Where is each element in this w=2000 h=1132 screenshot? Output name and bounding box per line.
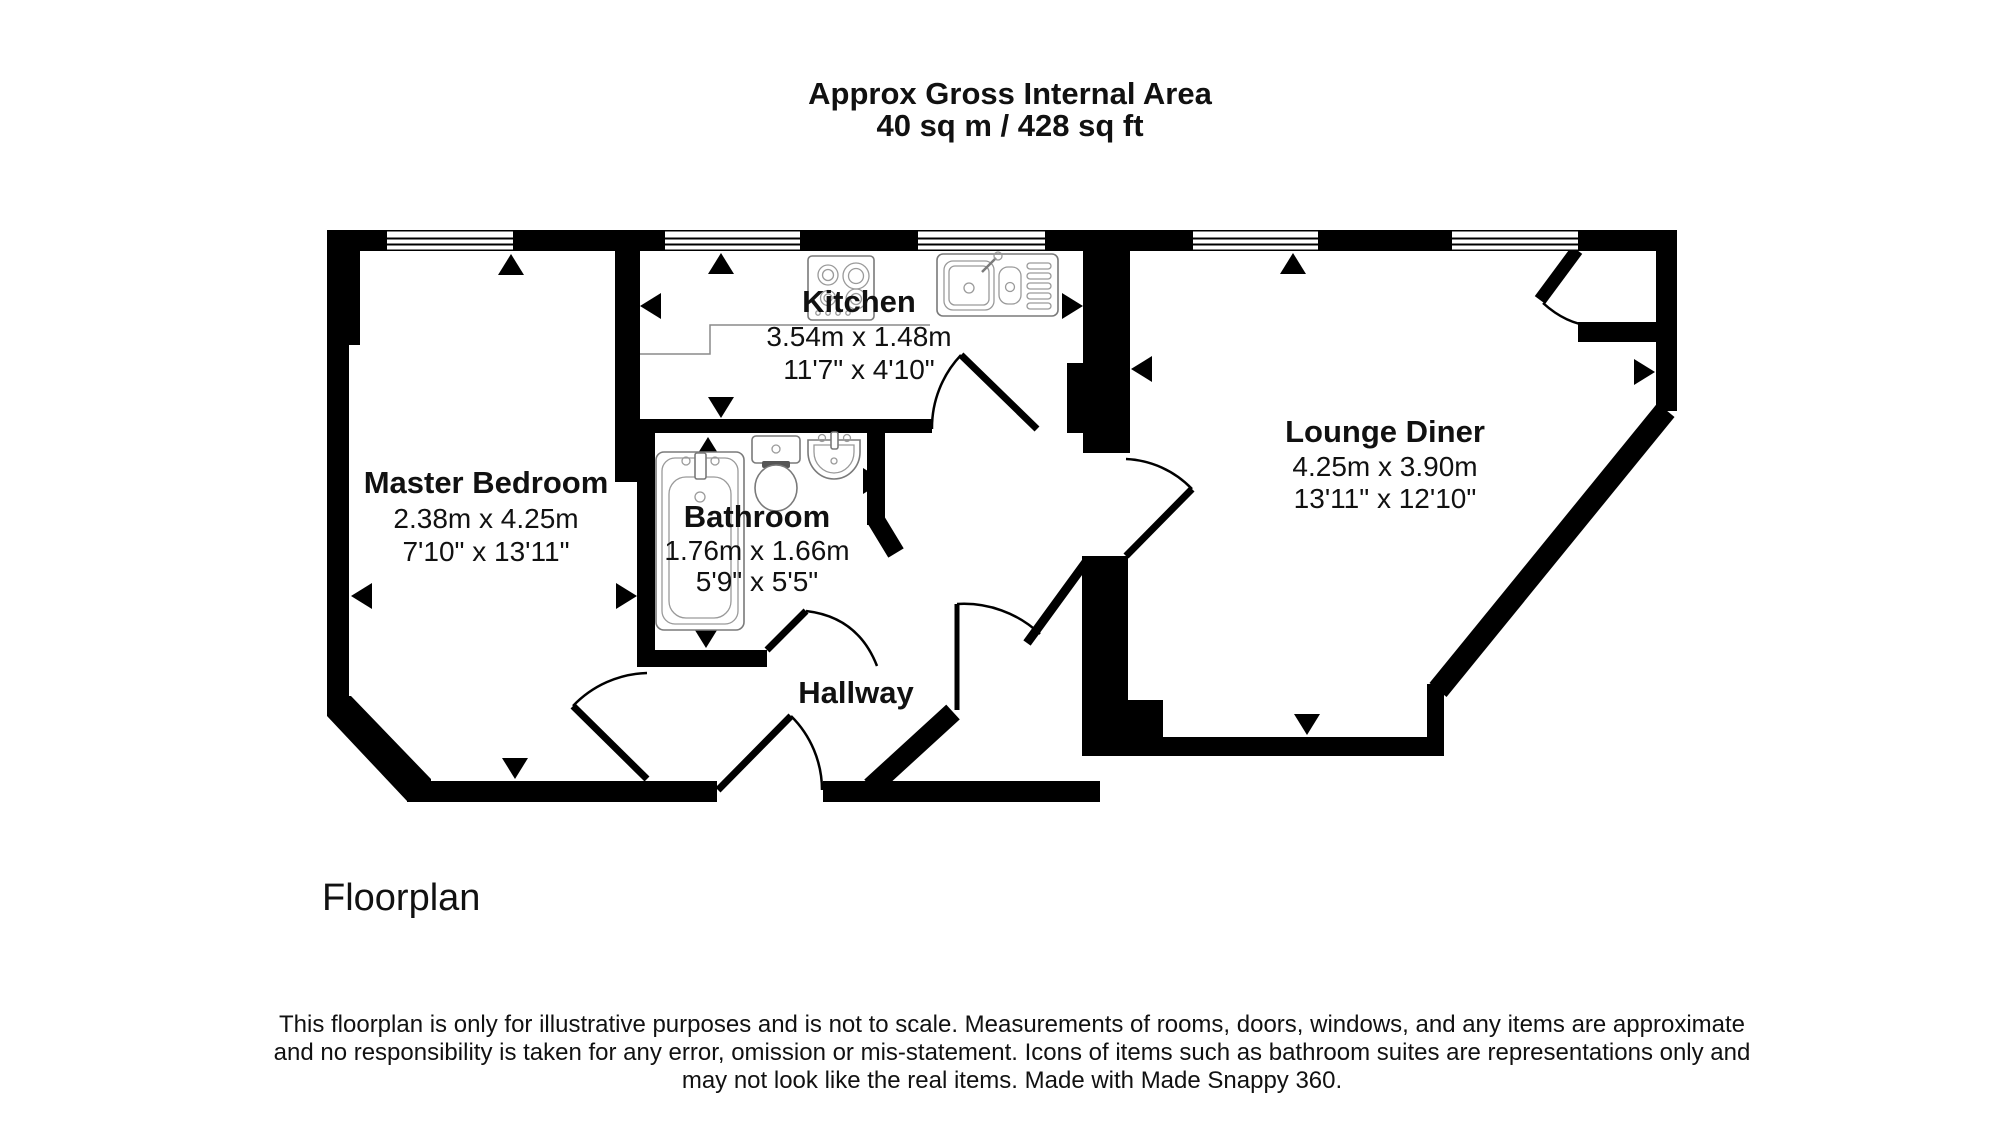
dimension-arrow bbox=[708, 397, 734, 418]
dimension-arrow bbox=[498, 254, 524, 275]
dimension-arrow bbox=[1634, 359, 1655, 385]
hallway-label: Hallway bbox=[798, 675, 914, 710]
master-bedroom-room: Master Bedroom 2.38m x 4.25m 7'10" x 13'… bbox=[364, 465, 609, 567]
lounge-diner-label: Lounge Diner bbox=[1285, 414, 1485, 449]
kitchen-label: Kitchen bbox=[802, 284, 916, 319]
dimension-arrow bbox=[616, 583, 637, 609]
dimension-arrow bbox=[708, 253, 734, 274]
kitchen-door-icon bbox=[932, 355, 1037, 429]
floorplan-caption: Floorplan bbox=[322, 877, 480, 919]
disclaimer-line1: This floorplan is only for illustrative … bbox=[279, 1011, 1745, 1038]
window-icon bbox=[918, 232, 1045, 250]
window-icon bbox=[1452, 232, 1578, 250]
lounge-door-icon bbox=[1126, 459, 1192, 556]
window-icon bbox=[665, 232, 800, 250]
master-bedroom-size-imperial: 7'10" x 13'11" bbox=[402, 536, 569, 567]
dimension-arrow bbox=[1062, 293, 1083, 319]
dimension-arrow bbox=[502, 758, 528, 779]
page-title-line2: 40 sq m / 428 sq ft bbox=[876, 108, 1143, 143]
disclaimer-line2: and no responsibility is taken for any e… bbox=[274, 1039, 1751, 1066]
bathroom-size-imperial: 5'9" x 5'5" bbox=[696, 566, 818, 597]
floorplan-page: Approx Gross Internal Area 40 sq m / 428… bbox=[0, 0, 2000, 1132]
window-icon bbox=[387, 232, 513, 250]
window-icon bbox=[1193, 232, 1318, 250]
dimension-arrow bbox=[351, 583, 372, 609]
lounge-diner-size-imperial: 13'11" x 12'10" bbox=[1294, 483, 1477, 514]
dimension-arrow bbox=[1280, 253, 1306, 274]
dimension-arrow bbox=[640, 293, 661, 319]
basin-icon bbox=[808, 432, 860, 479]
master-bedroom-size-metric: 2.38m x 4.25m bbox=[393, 503, 578, 534]
kitchen-room: Kitchen 3.54m x 1.48m 11'7" x 4'10" bbox=[766, 284, 951, 385]
kitchen-size-metric: 3.54m x 1.48m bbox=[766, 321, 951, 352]
entrance-door-icon bbox=[718, 716, 822, 790]
lounge-diner-size-metric: 4.25m x 3.90m bbox=[1292, 451, 1477, 482]
bedroom-door-icon bbox=[573, 673, 647, 779]
bathroom-size-metric: 1.76m x 1.66m bbox=[664, 535, 849, 566]
page-title-line1: Approx Gross Internal Area bbox=[808, 76, 1212, 111]
lounge-diner-room: Lounge Diner 4.25m x 3.90m 13'11" x 12'1… bbox=[1285, 414, 1485, 514]
dimension-arrow bbox=[1294, 714, 1320, 735]
hallway-door-icon bbox=[957, 562, 1086, 710]
disclaimer-line3: may not look like the real items. Made w… bbox=[682, 1067, 1342, 1094]
sink-icon bbox=[937, 252, 1058, 316]
bathroom-label: Bathroom bbox=[684, 499, 830, 534]
master-bedroom-label: Master Bedroom bbox=[364, 465, 609, 500]
dimension-arrow bbox=[1131, 356, 1152, 382]
bathroom-door-icon bbox=[767, 611, 877, 666]
floorplan-drawing: Approx Gross Internal Area 40 sq m / 428… bbox=[0, 0, 2000, 1132]
disclaimer: This floorplan is only for illustrative … bbox=[274, 1011, 1751, 1094]
kitchen-size-imperial: 11'7" x 4'10" bbox=[783, 354, 934, 385]
